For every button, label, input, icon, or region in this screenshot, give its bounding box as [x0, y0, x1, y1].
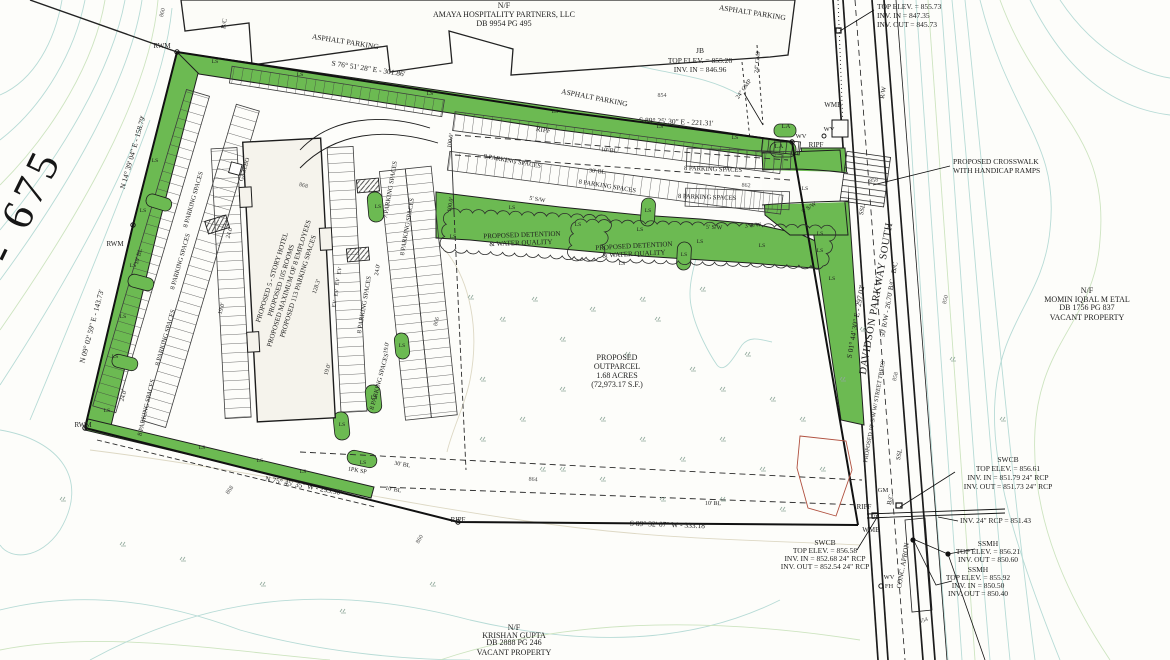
label-bearings-south2: S 89° 32' 07" W - 333.18' — [630, 519, 708, 531]
label-callouts-swcb_ne-1: TOP ELEV. = 856.61 — [976, 464, 1041, 473]
curb-inlet-symbol — [896, 503, 902, 508]
label-markers-ls: LS — [140, 208, 146, 214]
tree-symbol — [770, 397, 776, 401]
label-markers-ls: LS — [817, 248, 823, 254]
label-markers-ls: LS — [199, 445, 205, 451]
tree-symbol — [260, 582, 266, 586]
label-callouts-jb-1: TOP ELEV. = 855.26 — [668, 56, 733, 65]
label-markers-ls: LS — [130, 263, 136, 269]
label-markers-ls: LS — [427, 91, 433, 97]
label-outparcel-l3: 1.68 ACRES — [596, 371, 637, 380]
label-markers-ls: LS — [732, 135, 738, 141]
label-momin-nf: N/F — [1081, 286, 1094, 295]
label-amaya-deed: DB 9954 PG 495 — [476, 19, 531, 28]
label-parking-eight: 8 PARKING SPACES — [182, 170, 205, 228]
label-contour_labels-c864: 864 — [528, 477, 537, 483]
label-dims-d100: 100.0' — [447, 133, 455, 148]
label-markers-up: UP — [871, 514, 880, 521]
tree-symbol — [820, 467, 826, 471]
label-markers-ripf: RIPF — [857, 503, 872, 511]
tree-symbol — [680, 457, 686, 461]
label-markers-bc: B/C — [220, 18, 229, 30]
label-bearings-west1: N 14° 39' 04" E - 158.79' — [118, 114, 148, 190]
label-markers-ls: LS — [681, 252, 687, 258]
label-callouts-crosswalk-0: PROPOSED CROSSWALK — [953, 157, 1039, 166]
label-markers-cmp24: 24" CMP — [754, 50, 762, 74]
contour-line — [0, 430, 72, 555]
tree-symbol — [60, 497, 66, 501]
label-dims-d19: 19.0' — [383, 342, 391, 354]
label-outparcel-l2: OUTPARCEL — [594, 362, 640, 371]
label-dims-sw5: 5' S/W — [529, 196, 546, 205]
label-markers-ls: LS — [802, 186, 808, 192]
tree-symbol — [690, 367, 696, 371]
label-callouts-ssmh_b-3: INV. OUT = 850.40 — [948, 589, 1008, 598]
label-callouts-swcb_w-3: INV. OUT = 852.54 24" RCP — [781, 562, 869, 571]
label-markers-ls: LS — [637, 227, 643, 233]
label-contour_labels-c858: 858 — [892, 372, 900, 382]
label-contour_labels-c860: 860 — [159, 8, 167, 18]
label-markers-wmb: WMB — [824, 101, 842, 109]
label-amaya-nf: N/F — [498, 1, 511, 10]
label-markers-ls: LS — [759, 243, 765, 249]
label-markers-ls: LS — [399, 343, 405, 349]
label-callouts-inv_rcp: INV. 24" RCP = 851.43 — [960, 516, 1031, 525]
contour-line — [1060, 0, 1170, 78]
label-highway-label: I - 675 — [0, 139, 72, 304]
label-callouts-inlet_ne-1: INV. IN = 847.35 — [877, 11, 930, 20]
label-markers-ssl: SSL — [895, 448, 904, 460]
label-markers-ssl: SSL — [858, 203, 867, 215]
label-dims-bl10: 10' BL — [385, 486, 402, 495]
label-amaya-owner: AMAYA HOSPITALITY PARTNERS, LLC — [433, 10, 575, 19]
label-contour_labels-c850: 850 — [942, 295, 950, 305]
label-callouts-swcb_ne-0: SWCB — [997, 455, 1018, 464]
label-callouts-inlet_ne-0: TOP ELEV. = 855.73 — [877, 2, 942, 11]
label-dims-bl30: 30' BL — [394, 461, 411, 470]
label-markers-wmb: WMB — [862, 526, 880, 534]
label-callouts-jb-0: JB — [696, 46, 704, 55]
label-momin-deed: DB 1756 PG 837 — [1059, 303, 1114, 312]
tree-symbol — [120, 542, 126, 546]
tree-symbol — [590, 307, 596, 311]
label-markers-ls: LS — [300, 469, 306, 475]
label-markers-ev: EV — [336, 267, 343, 275]
label-markers-ls: LS — [552, 109, 558, 115]
label-callouts-crosswalk-1: WITH HANDICAP RAMPS — [953, 166, 1040, 175]
label-parking-one_pk: 1PK SP — [347, 466, 367, 475]
tree-symbol — [600, 477, 606, 481]
label-markers-bc: B/C — [886, 494, 895, 506]
label-markers-ls: LS — [152, 158, 158, 164]
tree-symbol — [520, 417, 526, 421]
label-markers-ls: LS — [257, 458, 263, 464]
water-valve-symbol — [822, 134, 826, 138]
label-markers-ls: LS — [375, 204, 381, 210]
label-krishan-deed: DB 2888 PG 246 — [486, 638, 541, 647]
label-momin-status: VACANT PROPERTY — [1050, 313, 1125, 322]
label-markers-ripf: RIPF — [451, 516, 466, 524]
label-markers-la: LA — [782, 123, 791, 130]
tree-symbol — [655, 317, 661, 321]
tree-symbol — [950, 357, 956, 361]
site-plan-page: N/FAMAYA HOSPITALITY PARTNERS, LLCDB 995… — [0, 0, 1170, 660]
tree-symbol — [340, 609, 346, 613]
label-dims-d24: 24.0' — [374, 264, 382, 276]
label-contour_labels-c854: 854 — [658, 93, 667, 99]
label-markers-ev: EV — [331, 300, 338, 308]
tree-symbol — [640, 297, 646, 301]
label-callouts-ssmh_a-2: INV. OUT = 850.60 — [958, 555, 1018, 564]
label-markers-ls: LS — [619, 261, 625, 267]
label-parking-eight: 8 PARKING SPACES — [684, 165, 743, 174]
label-markers-ls: LS — [697, 239, 703, 245]
label-markers-ls: LS — [450, 234, 456, 240]
label-outparcel-l4: (72,973.17 S.F.) — [591, 380, 643, 389]
label-markers-ls: LS — [360, 460, 366, 466]
tree-symbol — [800, 417, 806, 421]
tree-symbol — [500, 317, 506, 321]
label-contour_labels-c868: 868 — [225, 485, 235, 496]
dumpster-pad — [356, 178, 379, 193]
label-bearings-west2: N 09° 02' 59" E - 143.73' — [77, 288, 105, 364]
label-outparcel-l1: PROPOSED — [597, 353, 638, 362]
label-markers-ls: LS — [509, 205, 515, 211]
tree-symbol — [760, 467, 766, 471]
label-markers-ls: LS — [645, 208, 651, 214]
label-callouts-inlet_ne-2: INV. OUT = 845.73 — [877, 20, 937, 29]
label-dims-sw5: 5' S/W — [706, 225, 723, 232]
label-markers-ls: LS — [120, 314, 126, 320]
label-markers-la: LA — [775, 143, 784, 150]
tree-symbol — [560, 337, 566, 341]
label-markers-ls: LS — [657, 124, 663, 130]
tree-symbol — [480, 437, 486, 441]
label-krishan-status: VACANT PROPERTY — [477, 648, 552, 657]
label-markers-ls: LS — [104, 408, 110, 414]
label-markers-rw_label: R/W — [879, 85, 888, 99]
tree-symbol — [640, 437, 646, 441]
label-dims-bl10: 10' BL — [601, 147, 618, 155]
contour-line — [0, 600, 470, 660]
site-plan-drawing: N/FAMAYA HOSPITALITY PARTNERS, LLCDB 995… — [0, 0, 1170, 660]
tree-symbol — [430, 582, 436, 586]
label-markers-wv: WV — [824, 126, 835, 133]
contour-line — [90, 450, 860, 545]
label-markers-ls: LS — [297, 72, 303, 78]
label-markers-ev: EV — [333, 289, 340, 297]
dumpster-pad — [346, 247, 369, 262]
label-markers-gm: GM — [878, 487, 889, 494]
label-callouts-swcb_ne-2: INV. IN = 851.79 24" RCP — [967, 473, 1048, 482]
label-markers-ls: LS — [339, 422, 345, 428]
label-markers-rwm: RWM — [74, 421, 92, 429]
contour-line — [0, 0, 85, 140]
tree-symbol — [745, 352, 751, 356]
label-markers-ls: LS — [371, 395, 377, 401]
contour-line — [90, 599, 780, 660]
label-markers-rwm: RWM — [106, 240, 124, 248]
tree-symbol — [540, 467, 546, 471]
contour-line — [0, 641, 330, 660]
label-markers-ls: LS — [112, 354, 118, 360]
tree-symbol — [720, 437, 726, 441]
label-markers-fh: FH — [885, 583, 894, 590]
label-markers-rwm: RWM — [153, 42, 171, 50]
tree-symbol — [560, 467, 566, 471]
label-markers-ls: LS — [212, 59, 218, 65]
tree-symbol — [180, 557, 186, 561]
tree-symbol — [1000, 417, 1006, 421]
contour-line — [690, 255, 772, 368]
label-markers-wv: WV — [796, 133, 807, 140]
label-contour_labels-c862: 862 — [741, 183, 750, 189]
tree-symbol — [532, 297, 538, 301]
tree-symbol — [600, 417, 606, 421]
label-labels-asphalt: ASPHALT PARKING — [561, 87, 630, 109]
tree-symbol — [720, 387, 726, 391]
label-markers-ls: LS — [817, 231, 823, 237]
tree-symbol — [480, 377, 486, 381]
label-dims-bl10: 10' BL — [705, 501, 722, 507]
tree-symbol — [780, 507, 786, 511]
label-callouts-swcb_ne-3: INV. OUT = 851.73 24" RCP — [964, 482, 1052, 491]
label-markers-wv: WV — [884, 574, 895, 581]
contour-line — [1030, 0, 1170, 115]
label-markers-ev: EV — [334, 278, 341, 286]
label-markers-ls: LS — [829, 276, 835, 282]
label-markers-ripf: RIPF — [809, 141, 824, 149]
label-markers-ls: LS — [575, 222, 581, 228]
tree-symbol — [700, 287, 706, 291]
label-contour_labels-c860: 860 — [415, 534, 425, 545]
tree-symbol — [560, 387, 566, 391]
label-callouts-jb-2: INV. IN = 846.96 — [674, 65, 727, 74]
